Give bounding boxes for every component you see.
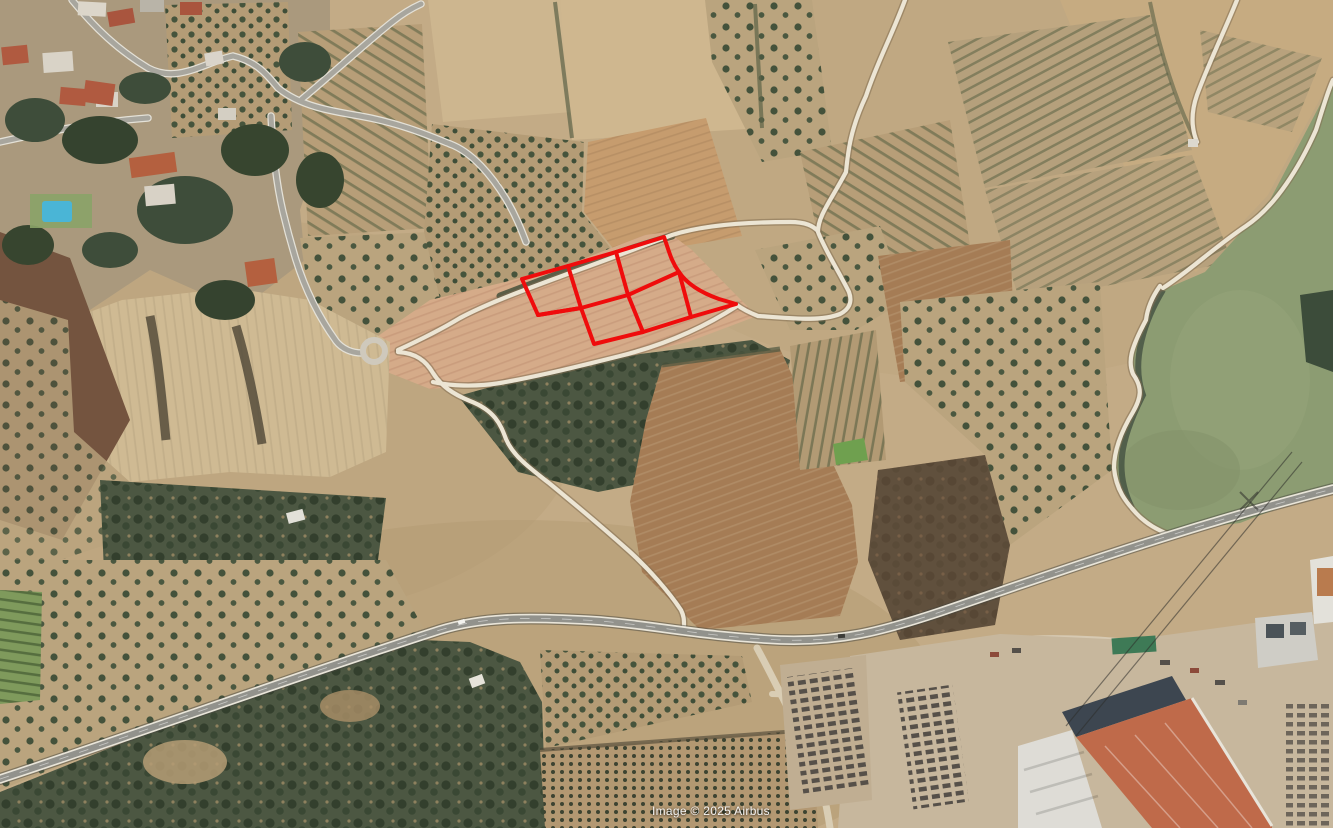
- house-red-roof: [83, 80, 116, 106]
- house-red-roof: [180, 2, 202, 15]
- house-white-roof: [42, 51, 73, 73]
- imagery-attribution: Image © 2025 Airbus: [652, 804, 770, 818]
- right-edge-building: [1310, 556, 1333, 624]
- small-building: [1188, 139, 1198, 147]
- aerial-imagery: [0, 0, 1333, 828]
- vehicle: [838, 634, 845, 638]
- house-gray-roof: [140, 0, 164, 12]
- house-red-roof: [1, 45, 29, 66]
- green-container: [1111, 635, 1156, 654]
- house-white-roof: [78, 1, 107, 16]
- house-white-roof: [218, 108, 236, 120]
- house-red-roof: [244, 258, 277, 287]
- gray-building: [1255, 612, 1318, 668]
- house-white-roof: [144, 184, 176, 207]
- satellite-map-view[interactable]: Image © 2025 Airbus: [0, 0, 1333, 828]
- storage-rows: [1286, 700, 1333, 828]
- house-red-roof: [59, 87, 86, 106]
- row-crops-green: [0, 590, 42, 704]
- swimming-pool: [42, 201, 72, 222]
